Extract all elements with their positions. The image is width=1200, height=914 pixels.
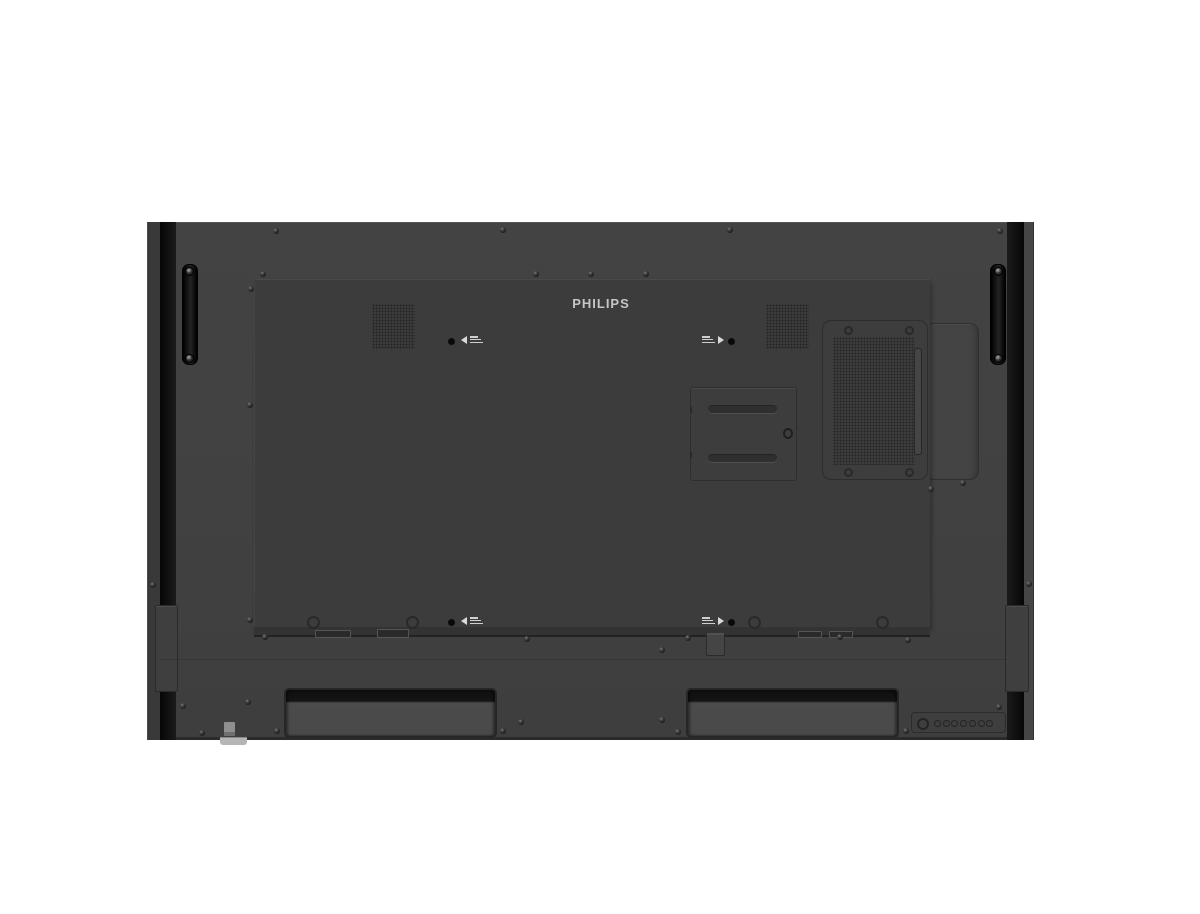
screw-icon: [448, 619, 455, 626]
connector-port: [315, 630, 351, 638]
screw-icon: [675, 729, 681, 735]
speaker-arrow-left-icon: [461, 617, 467, 625]
vent-slot: [914, 348, 922, 455]
screw-icon: [727, 227, 733, 233]
speaker-label-text: [702, 335, 715, 344]
product-photo-canvas: PHILIPS: [0, 0, 1200, 914]
screw-icon: [248, 286, 254, 292]
screw-icon: [996, 704, 1002, 710]
bottom-recess-left: [284, 688, 497, 738]
keypad-button: [934, 720, 941, 727]
screw-icon: [903, 728, 909, 734]
keypad-button: [951, 720, 958, 727]
philips-logo: PHILIPS: [566, 296, 636, 310]
screw-icon: [588, 271, 594, 277]
speaker-grille-left: [372, 304, 415, 349]
connector-port: [377, 629, 409, 638]
screw-icon: [247, 617, 253, 623]
handle-screw-icon: [994, 267, 1003, 276]
thumbscrew-icon: [783, 428, 793, 439]
screw-icon: [643, 271, 649, 277]
speaker-label: [461, 335, 483, 344]
screw-icon: [500, 728, 506, 734]
mount-slot: [708, 405, 777, 413]
keypad-button: [986, 720, 993, 727]
handle-screw-icon: [994, 354, 1003, 363]
screw-icon: [150, 582, 156, 588]
right-handle: [990, 264, 1006, 365]
speaker-label: [702, 616, 724, 625]
stand-tab: [220, 737, 247, 745]
vent-perforation: [833, 337, 915, 465]
speaker-label-text: [702, 616, 715, 625]
screw-icon: [685, 635, 691, 641]
speaker-label-text: [470, 335, 483, 344]
screw-icon: [728, 619, 735, 626]
vent-screw-hole: [905, 468, 914, 477]
speaker-arrow-left-icon: [461, 336, 467, 344]
ops-module-cover: [925, 323, 979, 480]
speaker-label-text: [470, 616, 483, 625]
screw-icon: [199, 730, 205, 736]
screw-icon: [245, 699, 251, 705]
screw-icon: [273, 228, 279, 234]
bottom-recess-right: [686, 688, 899, 738]
screw-icon: [274, 728, 280, 734]
speaker-arrow-right-icon: [718, 336, 724, 344]
screw-icon: [997, 228, 1003, 234]
plate-notch: [690, 407, 692, 413]
speaker-label: [702, 335, 724, 344]
handle-screw-icon: [185, 267, 194, 276]
panel-seam: [160, 659, 1007, 660]
speaker-grille-right: [766, 304, 809, 349]
right-side-bracket: [1005, 605, 1029, 692]
speaker-label: [461, 616, 483, 625]
screw-icon: [659, 717, 665, 723]
power-sensor-icon: [917, 718, 929, 730]
left-handle: [182, 264, 198, 365]
keypad-button: [969, 720, 976, 727]
screw-icon: [905, 637, 911, 643]
screw-icon: [180, 703, 186, 709]
screw-icon: [728, 338, 735, 345]
screw-icon: [659, 647, 665, 653]
control-keypad: [911, 712, 1006, 733]
screw-icon: [262, 634, 268, 640]
keypad-button: [943, 720, 950, 727]
screw-icon: [1026, 581, 1032, 587]
ring-hole: [406, 616, 419, 629]
screw-icon: [837, 634, 843, 640]
main-power-switch: [224, 722, 235, 736]
speaker-arrow-right-icon: [718, 617, 724, 625]
vent-screw-hole: [844, 468, 853, 477]
screw-icon: [260, 271, 266, 277]
vent-module: [822, 320, 928, 480]
antenna-cover: [706, 633, 725, 656]
screw-icon: [448, 338, 455, 345]
screw-icon: [960, 480, 966, 486]
ring-hole: [307, 616, 320, 629]
vent-screw-hole: [844, 326, 853, 335]
keypad-button: [960, 720, 967, 727]
left-side-bracket: [155, 605, 178, 692]
screw-icon: [533, 271, 539, 277]
handle-screw-icon: [185, 354, 194, 363]
connector-port: [798, 631, 822, 638]
screw-icon: [518, 719, 524, 725]
mount-slot: [708, 454, 777, 462]
screw-icon: [928, 486, 934, 492]
screw-icon: [247, 402, 253, 408]
ring-hole: [876, 616, 889, 629]
keypad-button: [978, 720, 985, 727]
screw-icon: [524, 636, 530, 642]
vesa-cover-plate: [690, 387, 797, 481]
plate-notch: [690, 452, 692, 458]
screw-icon: [500, 227, 506, 233]
vent-screw-hole: [905, 326, 914, 335]
ring-hole: [748, 616, 761, 629]
